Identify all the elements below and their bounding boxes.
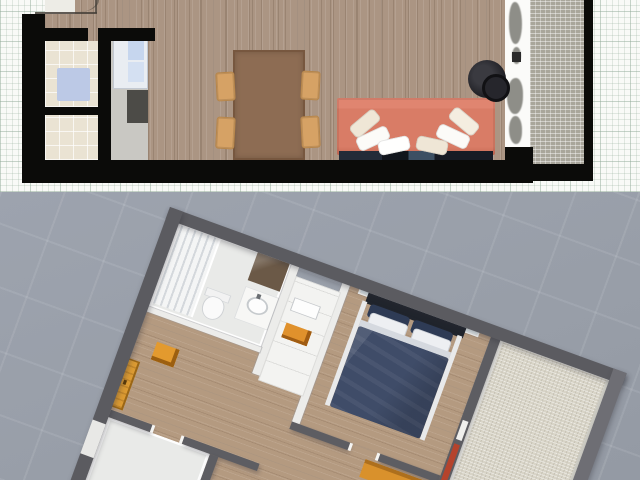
window-handle bbox=[512, 52, 521, 62]
balcony-pavers bbox=[530, 0, 584, 166]
wall-bottom bbox=[22, 160, 512, 183]
wc-floor bbox=[45, 115, 98, 160]
plant[interactable] bbox=[509, 116, 522, 144]
dining-chair[interactable] bbox=[300, 71, 320, 101]
dining-chair[interactable] bbox=[215, 72, 235, 102]
floorplan-app-canvas bbox=[0, 0, 640, 480]
plant[interactable] bbox=[509, 2, 522, 44]
fridge-panel-bottom bbox=[128, 62, 144, 82]
dining-chair[interactable] bbox=[215, 117, 236, 150]
shower-mat[interactable] bbox=[57, 68, 90, 101]
dining-table[interactable] bbox=[233, 50, 305, 160]
wall-bathroom-top bbox=[40, 28, 88, 41]
door-swing-line bbox=[35, 12, 97, 14]
wall-right bbox=[584, 0, 593, 171]
oven[interactable] bbox=[127, 90, 148, 123]
swivel-chair-seat bbox=[482, 74, 510, 102]
wall-bathroom-kitchen bbox=[98, 41, 111, 160]
dining-chair[interactable] bbox=[300, 116, 321, 149]
wall-bath-wc-divider bbox=[42, 107, 98, 115]
sofa-front-shadow bbox=[339, 151, 493, 160]
wall-kitchen-top bbox=[98, 28, 155, 41]
fridge-panel-top bbox=[128, 40, 144, 60]
plan-2d-view[interactable] bbox=[0, 0, 640, 192]
view-3d-pane[interactable] bbox=[0, 192, 640, 480]
